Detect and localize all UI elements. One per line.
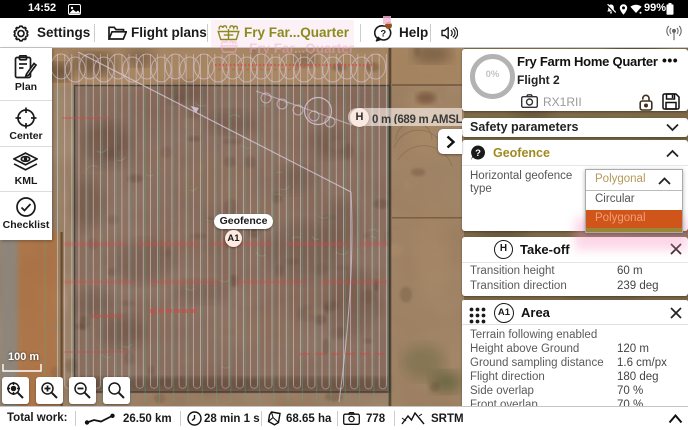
- svg-text:?: ?: [380, 29, 386, 40]
- svg-text:?: ?: [475, 148, 481, 159]
